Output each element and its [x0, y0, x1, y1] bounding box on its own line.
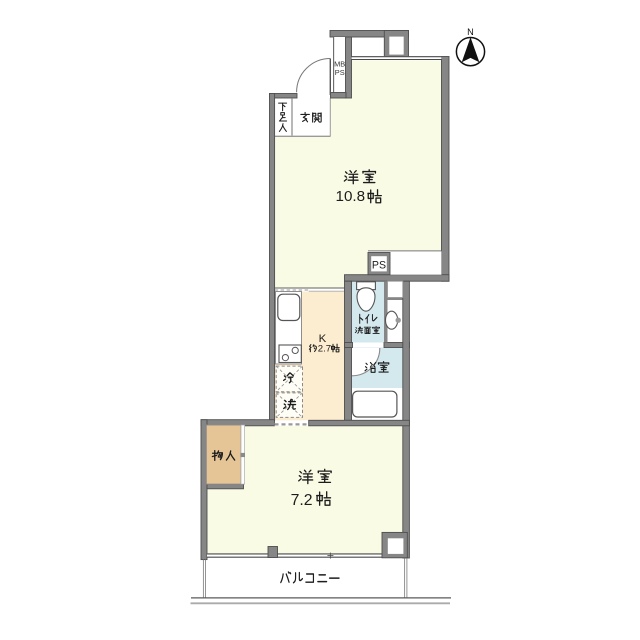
svg-text:PS: PS — [372, 259, 386, 271]
svg-text:7.2: 7.2 — [291, 492, 313, 509]
svg-text:2.7: 2.7 — [318, 343, 331, 354]
svg-text:10.8: 10.8 — [336, 188, 366, 205]
svg-text:N: N — [467, 27, 474, 37]
svg-text:PS: PS — [335, 68, 345, 77]
